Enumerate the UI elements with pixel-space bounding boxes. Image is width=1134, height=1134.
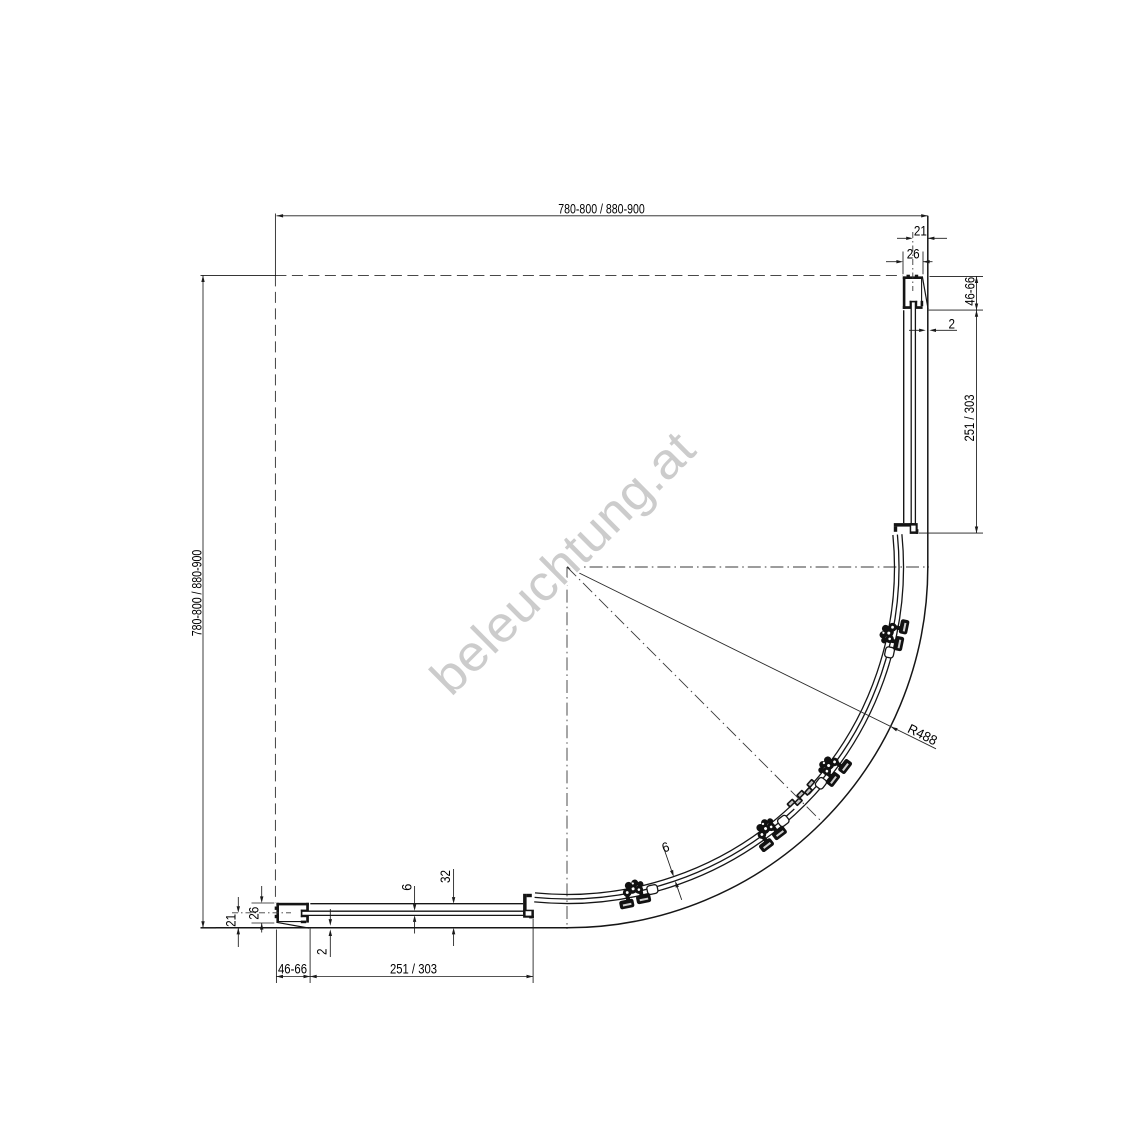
svg-text:780-800 / 880-900: 780-800 / 880-900 (558, 201, 645, 216)
svg-text:46-66: 46-66 (278, 962, 307, 977)
svg-text:251 / 303: 251 / 303 (962, 395, 977, 442)
svg-text:21: 21 (914, 224, 927, 239)
svg-text:32: 32 (438, 870, 453, 883)
svg-text:26: 26 (247, 907, 262, 920)
svg-text:6: 6 (400, 884, 415, 891)
svg-text:780-800 / 880-900: 780-800 / 880-900 (190, 550, 205, 637)
svg-text:21: 21 (224, 914, 239, 927)
svg-text:2: 2 (315, 949, 330, 956)
svg-text:26: 26 (907, 247, 920, 262)
svg-text:251 / 303: 251 / 303 (390, 962, 437, 977)
svg-text:46-66: 46-66 (962, 277, 977, 306)
svg-text:2: 2 (949, 316, 956, 331)
